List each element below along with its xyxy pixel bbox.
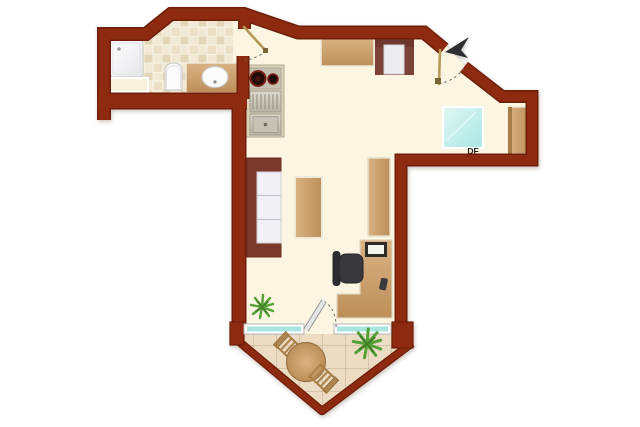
vanity-sink bbox=[186, 63, 239, 93]
balcony-window-right bbox=[334, 324, 391, 334]
wall-stub-left bbox=[230, 322, 244, 345]
bath-cabinet bbox=[107, 78, 148, 92]
skylight bbox=[443, 107, 483, 148]
sofa bbox=[247, 158, 281, 257]
sideboard bbox=[321, 38, 374, 66]
armchair bbox=[375, 38, 414, 75]
floor-plan-image: DF bbox=[0, 0, 640, 427]
coffee-table bbox=[295, 177, 322, 238]
shelf bbox=[368, 158, 390, 236]
kitchenette bbox=[246, 65, 284, 137]
balcony-table bbox=[287, 343, 326, 382]
wall-stub-right bbox=[392, 322, 413, 348]
balcony-floor bbox=[235, 334, 412, 410]
balcony-window-left bbox=[244, 324, 304, 334]
floor-plan-svg: DF bbox=[0, 0, 640, 427]
burner-small-icon bbox=[268, 74, 278, 84]
monitor bbox=[365, 242, 387, 257]
toilet bbox=[165, 63, 182, 90]
office-chair bbox=[333, 251, 364, 286]
shower bbox=[110, 40, 143, 77]
